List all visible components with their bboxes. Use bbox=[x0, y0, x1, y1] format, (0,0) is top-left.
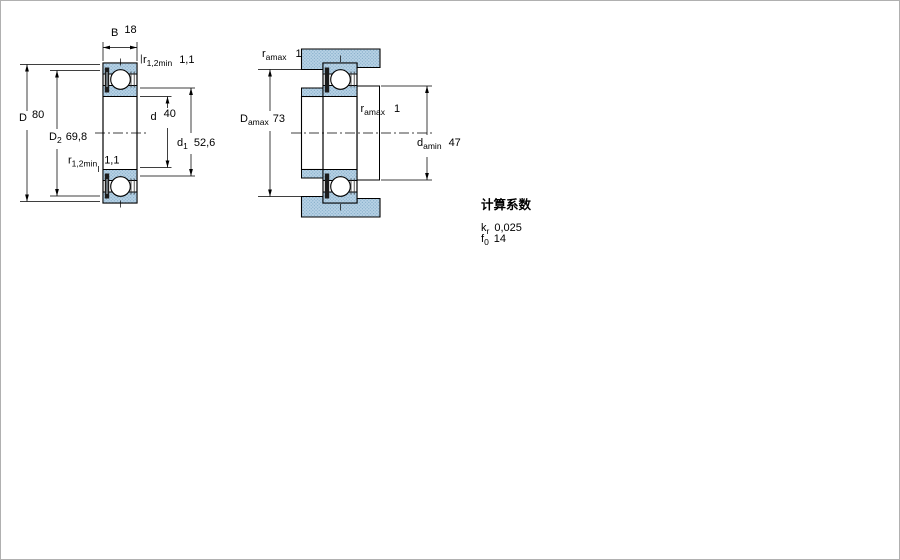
shaft-shoulder-top bbox=[302, 88, 324, 97]
factors-title: 计算系数 bbox=[481, 197, 532, 212]
seal-section bbox=[325, 174, 329, 199]
dimension-label: d152,6 bbox=[177, 137, 215, 151]
ball bbox=[331, 70, 351, 90]
bearing-dimension-drawing: B18 r1,2min1,1 r1,2min1,1 D80 D269,8 bbox=[0, 0, 900, 560]
ball bbox=[331, 177, 351, 197]
ball bbox=[111, 70, 131, 90]
dimension-label: D269,8 bbox=[49, 131, 87, 145]
ball bbox=[111, 177, 131, 197]
shaft-shoulder-bottom bbox=[302, 170, 324, 179]
drawing-page: B18 r1,2min1,1 r1,2min1,1 D80 D269,8 bbox=[0, 0, 900, 560]
seal-section bbox=[325, 68, 329, 93]
